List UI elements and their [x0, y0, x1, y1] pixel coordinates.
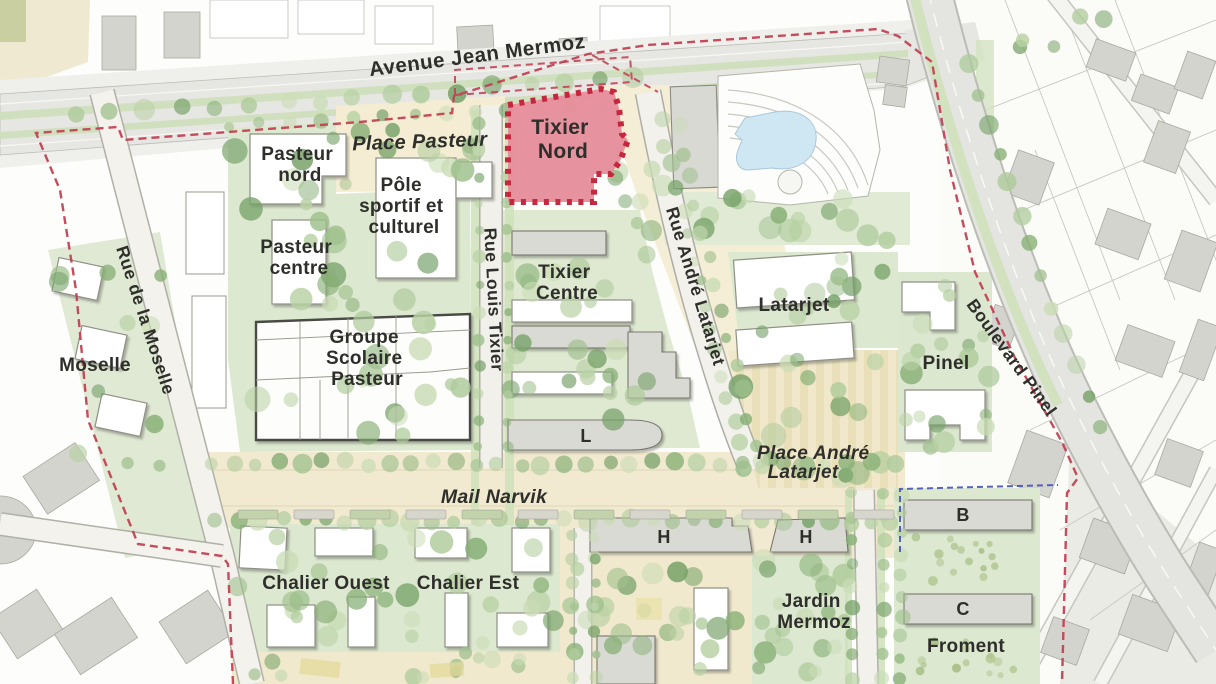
label-jardin-mermoz: Jardin Mermoz: [777, 591, 851, 633]
tree: [381, 455, 398, 472]
label-building-l: L: [580, 426, 591, 446]
planter: [630, 510, 670, 519]
tree: [933, 431, 955, 453]
tree: [505, 281, 515, 291]
planter: [462, 510, 502, 519]
tree: [670, 626, 685, 641]
tree: [101, 103, 118, 120]
tree: [876, 627, 887, 638]
tree: [791, 212, 805, 226]
tree: [679, 607, 696, 624]
tree: [756, 325, 769, 338]
tree: [412, 311, 436, 335]
tree: [684, 567, 703, 586]
tree: [291, 611, 303, 623]
tree: [502, 441, 513, 452]
tree: [154, 269, 167, 282]
tree: [666, 452, 684, 470]
tree: [928, 415, 946, 433]
tree: [588, 626, 600, 638]
tree: [591, 602, 600, 611]
tree: [543, 610, 564, 631]
label-building-h-west: H: [657, 527, 670, 547]
tree: [523, 599, 540, 616]
tree: [742, 189, 756, 203]
tree: [998, 172, 1017, 191]
tree: [282, 591, 303, 612]
tree: [978, 366, 999, 387]
tree: [474, 173, 484, 183]
planter: [686, 510, 726, 519]
tree: [122, 457, 134, 469]
tree: [902, 352, 921, 371]
tree: [696, 617, 708, 629]
tree: [264, 654, 280, 670]
tree: [241, 97, 257, 113]
tree: [290, 288, 313, 311]
tree: [714, 370, 727, 383]
tree: [980, 565, 987, 572]
tree: [207, 513, 222, 528]
tree: [800, 370, 815, 385]
tree: [878, 559, 890, 571]
tree: [565, 553, 578, 566]
tree: [642, 563, 664, 585]
tree: [284, 392, 299, 407]
tree: [688, 453, 706, 471]
tree: [878, 533, 893, 548]
tree: [473, 442, 482, 451]
tree: [893, 628, 907, 642]
tree: [588, 349, 607, 368]
tree: [310, 212, 329, 231]
tree: [836, 209, 859, 232]
tree: [227, 456, 243, 472]
tree: [580, 370, 596, 386]
tree: [473, 652, 484, 663]
tree: [821, 203, 838, 220]
tree: [1044, 302, 1058, 316]
tree: [977, 418, 995, 436]
tree: [567, 672, 579, 684]
tree: [835, 252, 849, 266]
tree: [524, 538, 543, 557]
tree: [998, 672, 1004, 678]
tree: [405, 630, 419, 644]
tree: [293, 454, 313, 474]
tree: [239, 197, 263, 221]
tree: [618, 194, 632, 208]
tree: [894, 488, 910, 504]
context-buildings-midwest: [186, 192, 226, 408]
tree: [849, 403, 867, 421]
tree: [693, 662, 707, 676]
tree: [957, 546, 965, 554]
planter: [518, 510, 558, 519]
tree: [894, 569, 907, 582]
tree: [604, 636, 622, 654]
tree: [566, 576, 579, 589]
tree: [393, 288, 416, 311]
tree: [276, 551, 299, 574]
label-building-h-east: H: [799, 527, 812, 547]
tree: [100, 265, 116, 281]
tree: [740, 413, 752, 425]
tree: [759, 560, 776, 577]
tree: [361, 459, 375, 473]
tree: [314, 452, 330, 468]
tree: [668, 180, 684, 196]
tree: [566, 530, 577, 541]
tree: [622, 67, 643, 88]
swimming-pool: [735, 111, 816, 170]
planter: [294, 510, 334, 519]
tree: [228, 577, 247, 596]
tree: [337, 452, 354, 469]
tree: [430, 530, 453, 553]
tree: [972, 89, 985, 102]
tree: [469, 105, 482, 118]
tree: [567, 339, 587, 359]
label-latarjet: Latarjet: [758, 295, 829, 316]
tree: [451, 158, 475, 182]
tree: [476, 636, 490, 650]
planter: [574, 510, 614, 519]
tree: [894, 653, 904, 663]
tree: [68, 106, 84, 122]
tree: [387, 241, 408, 262]
tree: [472, 334, 485, 347]
tree: [426, 453, 441, 468]
tree: [713, 458, 728, 473]
tree: [959, 54, 978, 73]
tree: [277, 511, 291, 525]
tree: [145, 415, 163, 433]
tree: [314, 600, 337, 623]
tree: [734, 380, 752, 398]
tree: [340, 178, 352, 190]
tree: [1034, 269, 1047, 282]
tree: [632, 193, 649, 210]
tree: [847, 558, 858, 569]
tree: [205, 458, 218, 471]
tree: [531, 456, 550, 475]
tree: [475, 200, 483, 208]
tree: [979, 115, 999, 135]
tree: [638, 372, 656, 390]
tree: [409, 337, 432, 360]
tree: [503, 418, 512, 427]
tree: [899, 413, 913, 427]
tree: [337, 515, 352, 530]
tree: [603, 386, 618, 401]
label-groupe-scolaire-pasteur: Groupe Scolaire Pasteur: [326, 327, 408, 390]
tree: [489, 457, 503, 471]
tree: [993, 657, 1002, 666]
tree: [501, 224, 512, 235]
tree: [644, 453, 660, 469]
tree: [986, 670, 992, 676]
planter: [350, 510, 390, 519]
tree: [676, 148, 691, 163]
label-froment: Froment: [927, 636, 1005, 657]
tree: [719, 391, 733, 405]
tree: [830, 382, 846, 398]
tree: [994, 148, 1007, 161]
tree: [980, 573, 988, 581]
tree: [701, 639, 720, 658]
tree: [596, 279, 614, 297]
tree: [450, 377, 470, 397]
tree: [133, 99, 155, 121]
tree: [897, 528, 907, 538]
tree: [120, 315, 136, 331]
tree: [799, 553, 822, 576]
tree: [876, 648, 888, 660]
tree: [606, 339, 627, 360]
label-tixier-centre: Tixier Centre: [536, 262, 598, 304]
tree: [249, 668, 261, 680]
tree: [249, 459, 262, 472]
tree: [372, 544, 388, 560]
tree: [687, 200, 699, 212]
tree: [704, 251, 716, 263]
tree: [578, 456, 594, 472]
tree: [417, 671, 430, 684]
tree: [1067, 355, 1086, 374]
tree: [897, 508, 907, 518]
tree: [568, 648, 580, 660]
tree: [918, 656, 926, 664]
tree: [513, 653, 526, 666]
tree: [846, 648, 858, 660]
tree: [555, 74, 574, 93]
tree: [602, 368, 618, 384]
label-mail-narvik: Mail Narvik: [441, 486, 548, 508]
tree: [473, 306, 486, 319]
tree: [154, 460, 166, 472]
tree: [840, 301, 860, 321]
label-pinel: Pinel: [923, 353, 970, 374]
tree: [633, 636, 653, 656]
tree: [951, 543, 958, 550]
tree: [913, 314, 933, 334]
planter: [742, 510, 782, 519]
tree: [465, 538, 487, 560]
tree: [412, 86, 430, 104]
tree: [790, 353, 804, 367]
tree: [827, 276, 847, 296]
tree: [846, 487, 857, 498]
tree: [570, 602, 579, 611]
tree: [770, 207, 787, 224]
tree: [1083, 390, 1095, 402]
tree: [388, 406, 408, 426]
tree: [504, 390, 513, 399]
tree: [714, 304, 728, 318]
tree: [514, 334, 531, 351]
tree: [590, 671, 603, 684]
tree: [846, 534, 857, 545]
map-canvas: Avenue Jean Mermoz Place Pasteur Tixier …: [0, 0, 1216, 684]
tree: [474, 415, 485, 426]
tree: [1016, 34, 1029, 47]
planter: [854, 510, 894, 519]
tree: [950, 569, 957, 576]
tree: [656, 139, 671, 154]
tree: [459, 647, 472, 660]
tree: [222, 138, 248, 164]
tree: [174, 98, 190, 114]
tree: [516, 459, 529, 472]
tree: [1072, 8, 1088, 24]
tree: [936, 559, 944, 567]
label-pasteur-centre: Pasteur centre: [260, 237, 337, 279]
tree: [723, 189, 741, 207]
tree: [344, 89, 360, 105]
tree: [470, 459, 483, 472]
planter: [406, 510, 446, 519]
tree: [878, 232, 895, 249]
tree: [692, 226, 707, 241]
tree: [965, 558, 973, 566]
tree: [672, 117, 687, 132]
tree: [69, 445, 87, 463]
tree: [641, 220, 662, 241]
tree: [928, 576, 938, 586]
tree: [281, 93, 297, 109]
tree: [896, 591, 908, 603]
context-green-plot: [0, 0, 26, 42]
tree: [522, 381, 536, 395]
tree: [973, 541, 979, 547]
tree: [895, 609, 911, 625]
tree: [781, 407, 802, 428]
tree: [877, 488, 889, 500]
tree: [322, 296, 338, 312]
tree: [874, 264, 890, 280]
tree: [404, 611, 420, 627]
label-chalier-est: Chalier Est: [417, 573, 520, 594]
tree: [1093, 420, 1107, 434]
tree: [414, 384, 436, 406]
tree: [934, 549, 943, 558]
tree: [943, 289, 956, 302]
tree: [912, 533, 921, 542]
tree: [654, 111, 670, 127]
tree: [592, 650, 600, 658]
tree: [555, 456, 573, 474]
tree: [963, 659, 970, 666]
tree: [952, 664, 961, 673]
tree: [346, 298, 360, 312]
pool-round-feature: [778, 170, 802, 194]
tree: [913, 410, 925, 422]
tree: [947, 536, 954, 543]
tree: [987, 541, 993, 547]
tree: [92, 384, 105, 397]
tree: [562, 374, 577, 389]
tree: [472, 388, 483, 399]
tree: [207, 101, 222, 116]
tree: [590, 554, 601, 565]
tree: [867, 353, 884, 370]
tree: [731, 434, 748, 451]
tree: [1013, 207, 1031, 225]
tree: [395, 428, 411, 444]
planter: [238, 510, 278, 519]
tree: [735, 461, 751, 477]
tree: [989, 553, 996, 560]
planter: [798, 510, 838, 519]
tree: [475, 360, 486, 371]
tree: [604, 456, 618, 470]
tree: [1095, 10, 1113, 28]
tree: [809, 665, 822, 678]
tree: [991, 562, 999, 570]
tree: [979, 548, 985, 554]
tree: [417, 253, 438, 274]
tree: [1021, 235, 1037, 251]
tree: [638, 246, 656, 264]
tree: [512, 620, 527, 635]
tree: [313, 96, 328, 111]
tree: [1048, 40, 1061, 53]
tree: [338, 285, 353, 300]
tree: [1010, 666, 1018, 674]
label-moselle: Moselle: [59, 355, 131, 376]
tree: [754, 641, 776, 663]
tree: [833, 189, 853, 209]
label-building-b: B: [956, 505, 969, 525]
tree: [879, 582, 890, 593]
tree: [383, 85, 402, 104]
tree: [407, 529, 426, 548]
tree: [569, 627, 577, 635]
tree: [245, 386, 271, 412]
tree: [483, 651, 501, 669]
tree: [1054, 324, 1073, 343]
tree: [269, 529, 286, 546]
tree: [731, 359, 744, 372]
tree: [726, 611, 745, 630]
label-building-c: C: [956, 599, 969, 619]
tree: [447, 516, 460, 529]
tree: [775, 638, 794, 657]
tree: [588, 532, 599, 543]
tree: [483, 596, 499, 612]
tree: [317, 626, 338, 647]
tree: [644, 161, 661, 178]
tree: [887, 455, 905, 473]
tree: [682, 168, 698, 184]
tree: [395, 583, 419, 607]
tree: [827, 640, 842, 655]
tree: [591, 578, 600, 587]
tree: [916, 667, 925, 676]
tree: [448, 453, 465, 470]
tree: [602, 408, 624, 430]
tree: [49, 272, 69, 292]
tree: [275, 669, 287, 681]
tree: [300, 198, 312, 210]
tree: [533, 577, 549, 593]
tree: [830, 396, 850, 416]
tree: [607, 568, 629, 590]
tree: [403, 455, 419, 471]
label-tixier-nord: Tixier Nord: [531, 116, 595, 163]
tree: [877, 602, 892, 617]
